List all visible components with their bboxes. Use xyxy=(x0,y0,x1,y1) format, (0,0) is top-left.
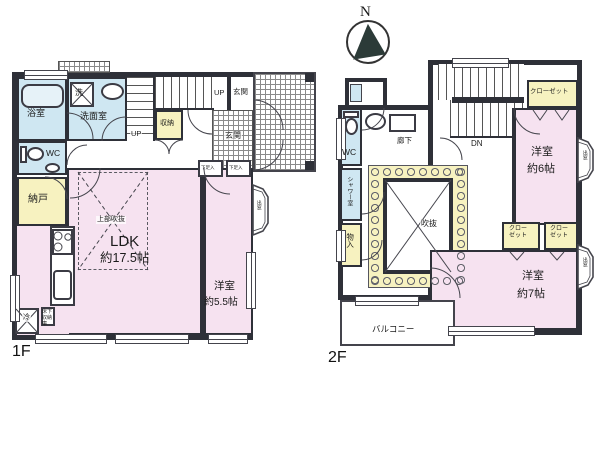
fixture-box xyxy=(350,84,362,102)
bay-window-glazing xyxy=(253,189,265,231)
balcony-label: バルコニー xyxy=(372,325,414,335)
window xyxy=(208,334,248,344)
void-label: 吹抜 xyxy=(420,219,438,228)
floor1-label: 1F xyxy=(12,343,31,361)
wc-label-2f: WC xyxy=(342,148,356,158)
entrance-tile-label: 玄関 xyxy=(224,131,242,140)
western6-label: 洋室 xyxy=(531,146,553,159)
bay-window-shape xyxy=(253,185,268,235)
dn-label: DN xyxy=(470,139,484,148)
bathtub-icon xyxy=(21,84,64,108)
vanity-basin-icon xyxy=(365,113,386,130)
closet-w6-label: クローゼット xyxy=(530,88,568,95)
porch-pillar xyxy=(305,73,314,82)
toilet-tank-icon xyxy=(20,146,27,163)
window xyxy=(24,70,68,80)
shower-room-label: シャワー室 xyxy=(345,176,352,206)
porch-pillar xyxy=(305,161,314,170)
railing-scallop-bottom xyxy=(369,275,467,287)
storage-room-label: 納戸 xyxy=(28,194,48,206)
storage-2f-label: 物入 xyxy=(345,233,354,248)
window xyxy=(35,334,107,344)
north-label: N xyxy=(360,4,371,21)
entrance-porch xyxy=(253,72,316,172)
ldk-size-label: 約17.5帖 xyxy=(100,251,149,265)
ldk-label: LDK xyxy=(110,233,139,250)
western5-size-label: 約5.5帖 xyxy=(204,297,238,309)
stair-closet-label: 収納 xyxy=(160,120,174,128)
up-label: UP xyxy=(130,130,142,139)
compass-circle xyxy=(346,20,390,64)
western7-size-label: 約7帖 xyxy=(517,288,545,301)
corridor-label: 廊下 xyxy=(397,137,412,146)
balcony xyxy=(340,300,455,346)
stove-icon xyxy=(52,229,73,255)
western6-size-label: 約6帖 xyxy=(527,163,555,176)
floor2-label: 2F xyxy=(328,349,347,367)
floor-plan-canvas: 浴室 洗 洗面室 WC 納戸 収納 UP UP 玄関 玄関 下足入 下足入 LD… xyxy=(0,0,600,450)
railing-scallop-right xyxy=(455,166,467,287)
washer-label: 洗 xyxy=(75,88,83,97)
toilet-bowl-icon xyxy=(345,118,358,135)
western5-label: 洋室 xyxy=(214,280,235,292)
bathroom-label: 浴室 xyxy=(27,108,45,118)
western7-label: 洋室 xyxy=(522,270,544,283)
wall-segment xyxy=(227,77,231,110)
closet-w7-label: クローゼット xyxy=(509,226,531,240)
washroom-label: 洗面室 xyxy=(80,111,107,121)
window xyxy=(246,252,256,309)
up-label: UP xyxy=(214,89,224,98)
toilet-tank-icon xyxy=(343,111,359,118)
wc-label-1f: WC xyxy=(46,149,60,159)
bay-window-label: 出窓 xyxy=(255,200,261,210)
window xyxy=(452,58,509,68)
fridge-label: 冷 xyxy=(22,314,31,322)
closet-w7-label: クローゼット xyxy=(550,226,572,240)
washbasin-icon xyxy=(101,83,124,100)
kitchen-sink-icon xyxy=(53,270,72,300)
balcony-sliding-door xyxy=(355,296,419,306)
bay-window-label: 出窓 xyxy=(581,150,587,160)
railing-scallop-left xyxy=(369,166,381,287)
staircase-1f-turn xyxy=(155,77,214,110)
window xyxy=(448,326,535,336)
bay-window-label: 出窓 xyxy=(581,257,587,267)
shoe-cabinet-label: 下足入 xyxy=(229,165,243,170)
stair-center-wall xyxy=(452,97,524,103)
small-basin-icon xyxy=(45,163,60,173)
entrance-hall-label: 玄関 xyxy=(233,88,248,97)
vanity-counter xyxy=(389,114,416,132)
shoe-cabinet-label: 下足入 xyxy=(201,165,215,170)
toilet-bowl-icon xyxy=(27,147,44,161)
staircase-2f-upper xyxy=(438,64,524,100)
railing-scallop-top xyxy=(369,166,467,178)
window xyxy=(10,275,20,322)
window xyxy=(115,334,189,344)
open-ceiling-label: 上部吹抜 xyxy=(96,216,126,224)
underfloor-storage-label: 床下収納庫 xyxy=(42,309,54,327)
